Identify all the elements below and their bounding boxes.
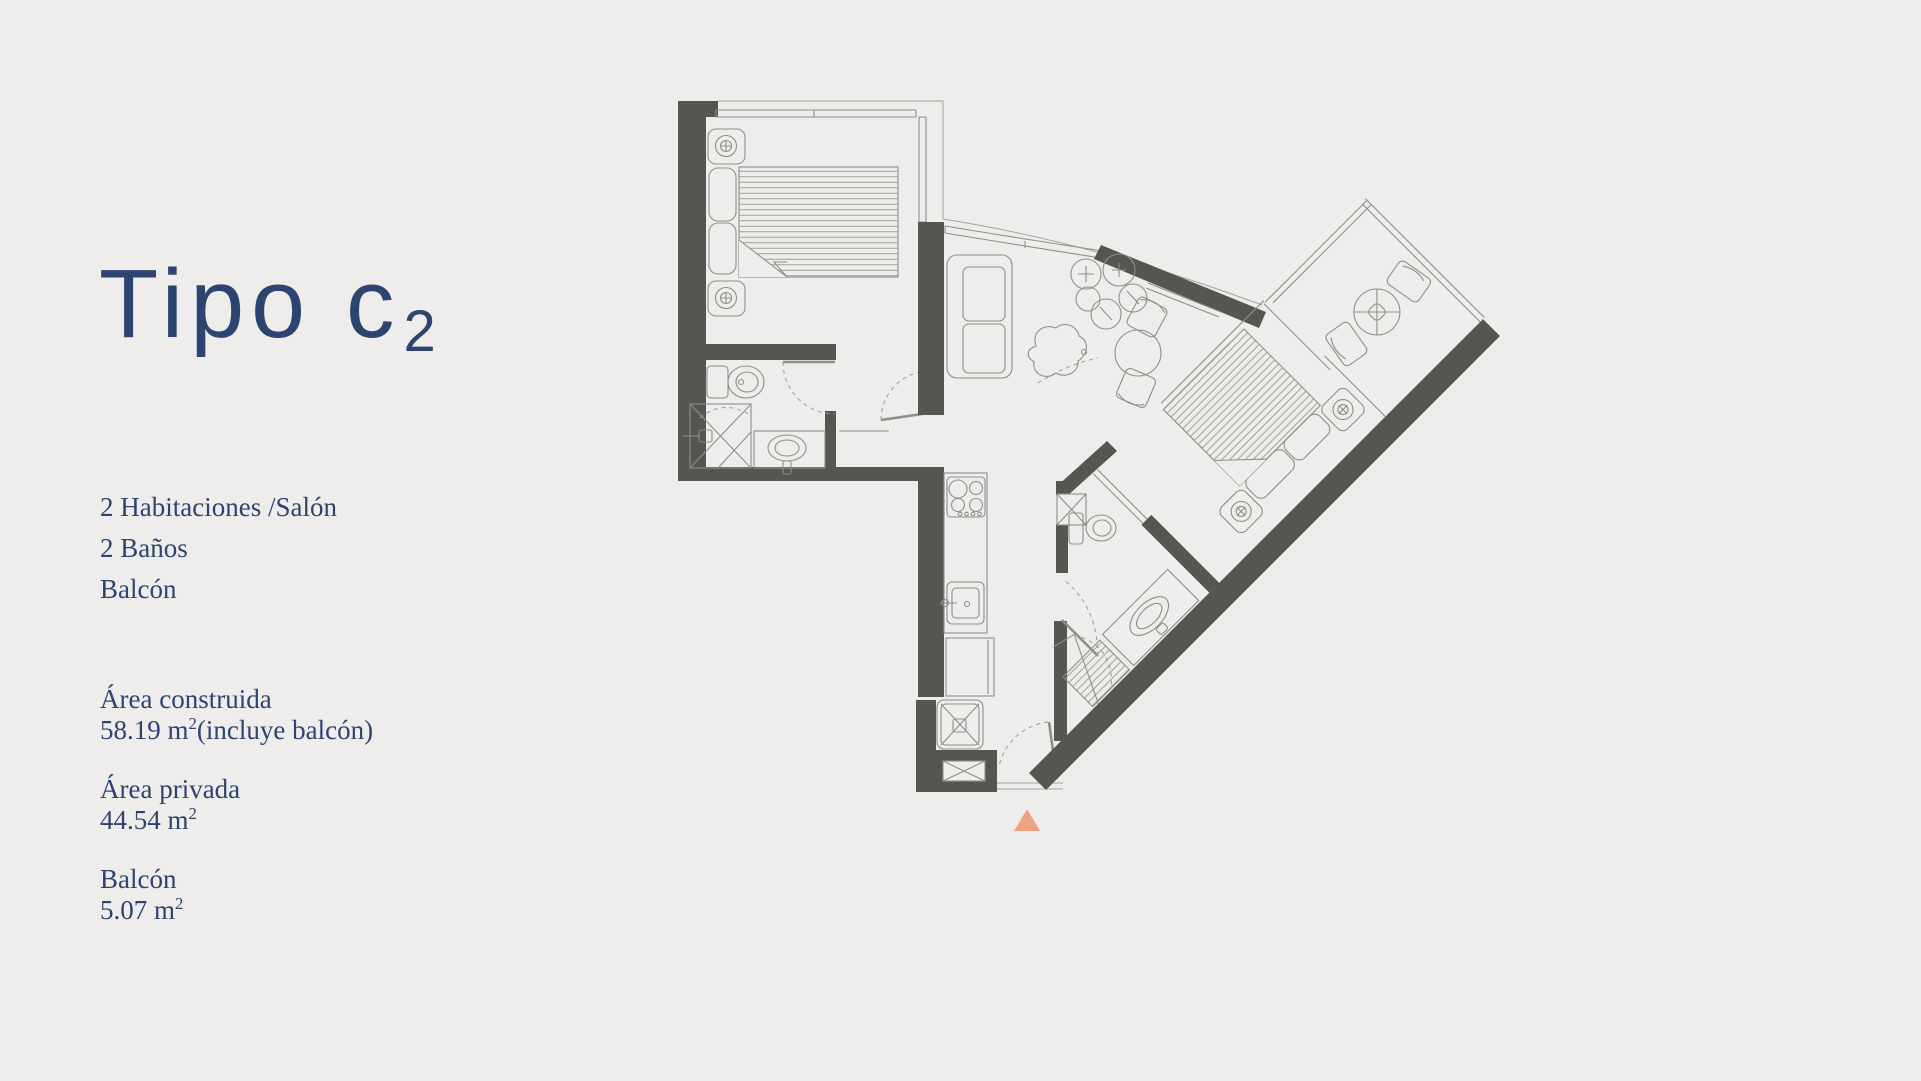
door-bathroom-1	[783, 362, 835, 414]
cooktop-icon	[947, 477, 985, 517]
wall-entry-left	[916, 700, 936, 792]
kitchen-counter	[940, 473, 987, 633]
hall-kitchen	[916, 222, 1063, 831]
sink-icon	[754, 431, 825, 474]
chair-icon	[1115, 367, 1157, 409]
balcony-table-icon	[1344, 279, 1409, 344]
bed-icon	[1163, 329, 1338, 504]
toilet-icon	[707, 366, 764, 398]
window-right	[919, 117, 926, 222]
nightstand-icon	[708, 281, 745, 316]
door-bathroom-2	[1062, 581, 1098, 656]
door-swing	[1038, 358, 1098, 383]
nightstand-icon	[1217, 487, 1265, 535]
fridge-icon	[946, 638, 994, 696]
sofa-icon	[947, 255, 1012, 378]
entrance-marker-icon	[1014, 809, 1040, 831]
bedroom-1	[678, 101, 943, 481]
washer-icon	[937, 700, 983, 749]
balcony-chair-icon	[1324, 320, 1369, 367]
shaft-icon	[1057, 494, 1086, 525]
wall-divider	[1141, 515, 1219, 593]
nightstand-icon	[708, 129, 745, 164]
coffee-table-icon	[1028, 325, 1086, 377]
wall-left	[678, 101, 706, 481]
pillow-icon	[709, 223, 736, 274]
wall-bedroom-living	[918, 222, 944, 415]
window-curved	[945, 226, 1103, 258]
balcony	[1317, 252, 1436, 371]
side-table-icon	[1115, 330, 1161, 376]
window-top	[716, 110, 916, 117]
angled-wing	[910, 199, 1501, 790]
balcony-chair-icon	[1385, 259, 1432, 304]
wall-bathroom-bottom	[678, 467, 918, 481]
floor-plan-area	[0, 0, 1921, 1081]
pillow-icon	[709, 168, 736, 221]
wall-pier	[825, 411, 836, 468]
shaft-icon	[943, 761, 985, 781]
floor-plan	[0, 0, 1921, 1081]
bed-icon	[709, 167, 898, 277]
wall-top-stub	[678, 101, 718, 117]
wall-kitchen	[918, 467, 944, 697]
wall-bedroom-bottom	[706, 344, 836, 360]
kitchen-sink-icon	[940, 582, 984, 624]
bathroom-1	[678, 344, 929, 481]
nightstand-icon	[1319, 386, 1367, 434]
